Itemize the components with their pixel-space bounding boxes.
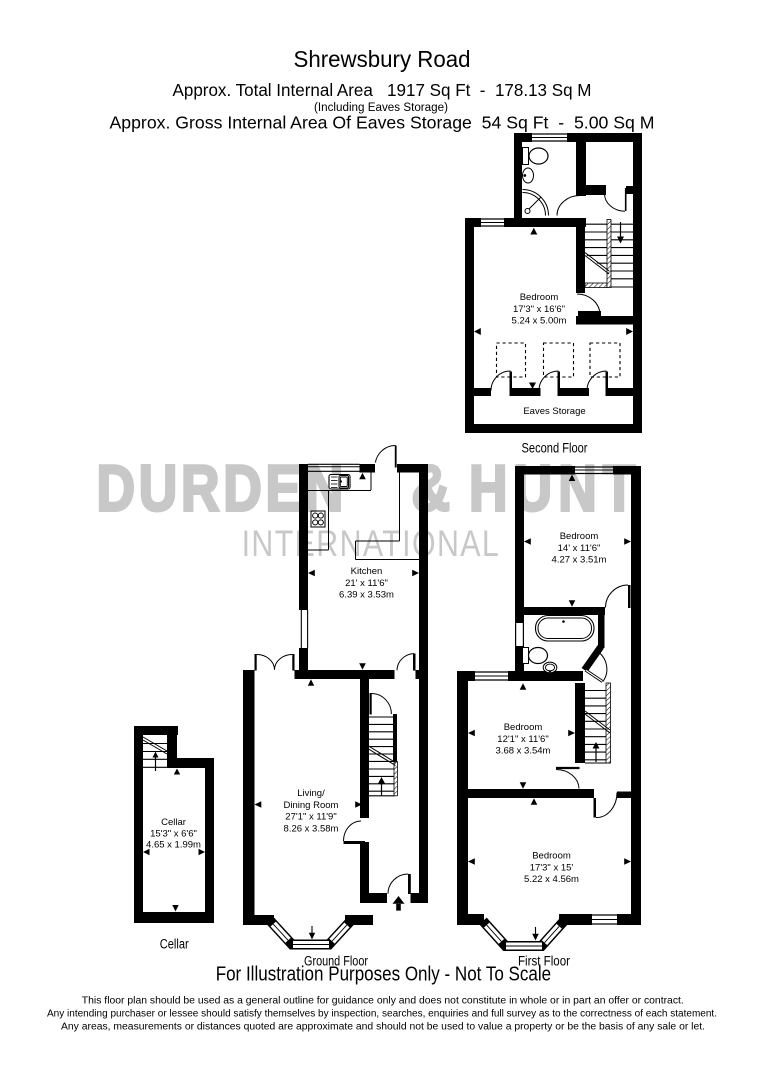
svg-text:17'3" x 16'6": 17'3" x 16'6": [513, 304, 565, 315]
svg-text:12'1" x 11'6": 12'1" x 11'6": [497, 734, 548, 745]
svg-text:Eaves Storage: Eaves Storage: [523, 406, 585, 417]
svg-text:3.68 x 3.54m: 3.68 x 3.54m: [496, 746, 551, 757]
svg-text:14' x 11'6": 14' x 11'6": [558, 543, 601, 554]
svg-text:HUNT: HUNT: [469, 452, 642, 525]
svg-text:17'3" x 15': 17'3" x 15': [530, 862, 574, 873]
svg-text:4.27 x 3.51m: 4.27 x 3.51m: [552, 555, 607, 566]
svg-text:Bedroom: Bedroom: [504, 722, 543, 733]
svg-text:Living/: Living/: [297, 788, 325, 799]
svg-text:6.39 x 3.53m: 6.39 x 3.53m: [339, 590, 394, 601]
svg-text:DURDEN: DURDEN: [97, 452, 348, 525]
svg-text:&: &: [412, 452, 450, 525]
svg-text:Approx. Gross Internal Area Of: Approx. Gross Internal Area Of Eaves Sto…: [110, 113, 655, 133]
svg-text:INTERNATIONAL: INTERNATIONAL: [242, 523, 501, 565]
svg-text:5.24 x 5.00m: 5.24 x 5.00m: [512, 316, 567, 327]
svg-text:15'3" x 6'6": 15'3" x 6'6": [150, 828, 197, 839]
svg-text:Bedroom: Bedroom: [560, 531, 599, 542]
svg-text:21' x 11'6": 21' x 11'6": [345, 578, 388, 589]
svg-text:Second Floor: Second Floor: [522, 441, 588, 456]
svg-text:Any areas, measurements or dis: Any areas, measurements or distances quo…: [61, 1021, 705, 1032]
svg-text:5.22 x 4.56m: 5.22 x 4.56m: [524, 874, 579, 885]
svg-text:Approx. Total Internal Area: Approx. Total Internal Area 1917 Sq Ft -…: [173, 80, 592, 100]
svg-text:For Illustration Purposes Only: For Illustration Purposes Only - Not To …: [216, 964, 551, 986]
svg-text:8.26 x 3.58m: 8.26 x 3.58m: [284, 823, 339, 834]
svg-text:This floor plan should be used: This floor plan should be used as a gene…: [82, 996, 684, 1007]
svg-text:Shrewsbury Road: Shrewsbury Road: [294, 46, 471, 72]
svg-text:27'1" x 11'9": 27'1" x 11'9": [285, 812, 336, 823]
svg-text:Bedroom: Bedroom: [520, 292, 559, 303]
svg-text:Cellar: Cellar: [161, 817, 186, 828]
svg-text:Bedroom: Bedroom: [532, 851, 571, 862]
svg-text:Cellar: Cellar: [160, 937, 189, 952]
svg-text:4.65 x 1.99m: 4.65 x 1.99m: [146, 840, 201, 851]
svg-text:Kitchen: Kitchen: [351, 566, 383, 577]
svg-text:Any intending purchaser or les: Any intending purchaser or lessee should…: [47, 1008, 717, 1019]
svg-text:Dining Room: Dining Room: [284, 800, 339, 811]
